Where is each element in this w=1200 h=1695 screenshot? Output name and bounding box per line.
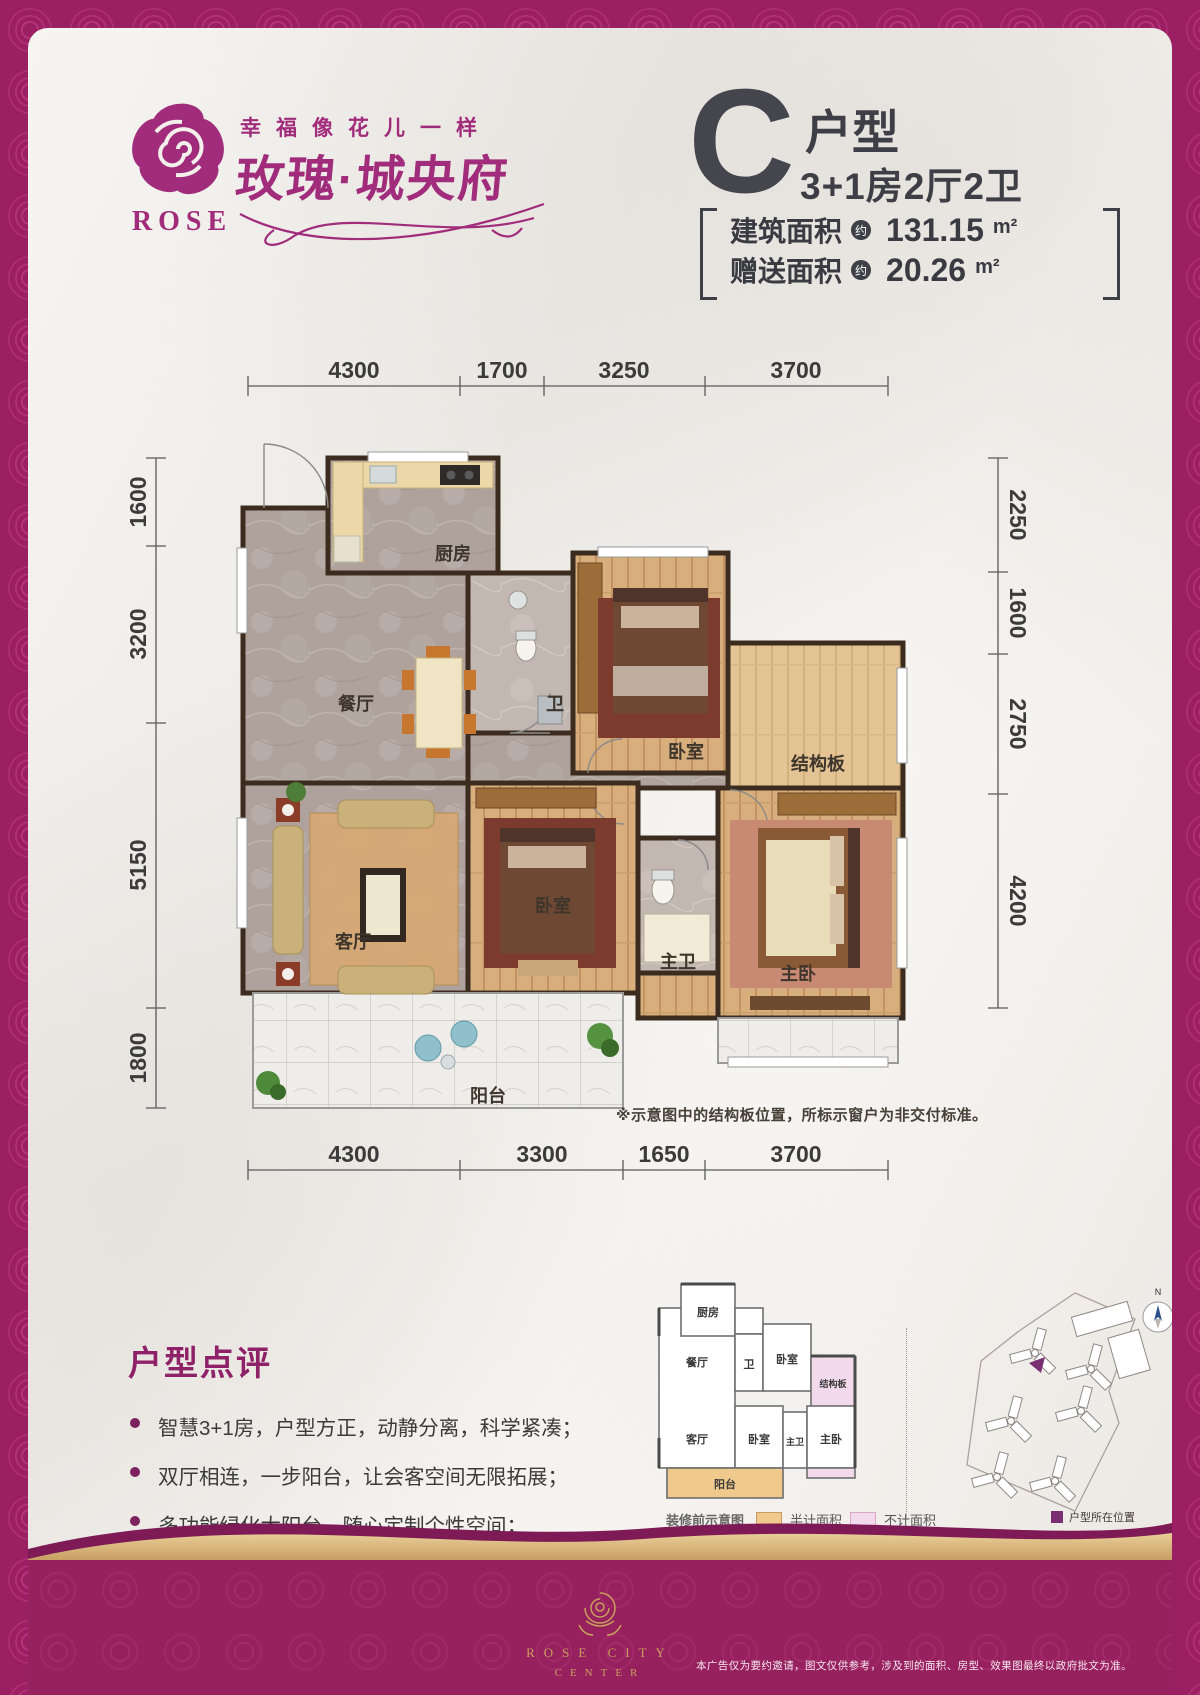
dim-left-1: 1600 xyxy=(125,476,151,527)
mini-hall xyxy=(735,1308,763,1334)
plan-note: ※示意图中的结构板位置，所标示窗户为非交付标准。 xyxy=(616,1104,988,1125)
room-dining-label: 餐厅 xyxy=(337,693,374,714)
dim-left-4: 1800 xyxy=(125,1032,151,1083)
review-title: 户型点评 xyxy=(128,1336,608,1385)
built-area-value: 131.15 xyxy=(886,212,984,249)
gift-area-unit: m² xyxy=(975,256,999,279)
dim-top-4: 3700 xyxy=(770,357,821,383)
dim-bottom-2: 3300 xyxy=(516,1141,567,1167)
mini-dining-label: 餐厅 xyxy=(685,1355,708,1369)
mini-kitchen-label: 厨房 xyxy=(697,1305,719,1319)
footer-logo-line1: ROSE CITY xyxy=(526,1645,674,1661)
room-kitchen-label: 厨房 xyxy=(435,543,471,564)
mini-master-bedroom-label: 主卧 xyxy=(820,1432,842,1446)
unit-letter: C xyxy=(688,68,795,216)
room-south-strip xyxy=(718,1018,898,1063)
footer-logo-line2: CENTER xyxy=(555,1667,646,1679)
approx-badge: 约 xyxy=(851,260,871,280)
footer-band: ROSE CITY CENTER 本广告仅为要约邀请，图文仅供参考，涉及到的面积… xyxy=(28,1560,1172,1695)
unit-type-label: 户型 xyxy=(805,94,899,163)
mini-slab-label: 结构板 xyxy=(819,1378,847,1389)
gift-area-row: 赠送面积 约 20.26 m² xyxy=(730,252,1000,288)
gift-area-value: 20.26 xyxy=(886,252,966,289)
room-bedroom-top-label: 卧室 xyxy=(668,741,704,762)
footer-wave xyxy=(28,1487,1172,1565)
area-box: 建筑面积 约 131.15 m² 赠送面积 约 20.26 m² xyxy=(700,208,1120,300)
gift-area-label: 赠送面积 xyxy=(730,250,842,290)
site-tower xyxy=(1010,1328,1056,1374)
mini-pink-strip xyxy=(807,1468,855,1478)
mini-bedroom-top-label: 卧室 xyxy=(776,1352,798,1366)
bedroom-top-furniture xyxy=(578,563,720,738)
dim-right-1: 2250 xyxy=(1005,489,1031,540)
room-living-label: 客厅 xyxy=(335,931,371,952)
dim-left-3: 5150 xyxy=(125,839,151,890)
mini-master-bath-label: 主卫 xyxy=(786,1436,804,1447)
room-balcony-label: 阳台 xyxy=(470,1085,506,1106)
room-bath-label: 卫 xyxy=(546,694,564,714)
room-master-bedroom-label: 主卧 xyxy=(780,963,816,984)
dim-top-1: 4300 xyxy=(328,357,379,383)
room-master-bath-label: 主卫 xyxy=(660,951,696,972)
mini-bath-label: 卫 xyxy=(744,1358,755,1371)
site-tower xyxy=(986,1396,1032,1442)
dim-right-4: 4200 xyxy=(1005,875,1031,926)
bracket-right xyxy=(1103,208,1120,300)
dim-right-3: 2750 xyxy=(1005,698,1031,749)
review-bullet: 双厅相连，一步阳台，让会客空间无限拓展； xyxy=(128,1460,608,1490)
review-bullet: 智慧3+1房，户型方正，动静分离，科学紧凑； xyxy=(128,1411,608,1441)
footer-rose-icon xyxy=(560,1583,640,1643)
dim-rail-left xyxy=(146,458,166,1108)
unit-layout: 3+1房2厅2卫 xyxy=(800,156,1023,210)
room-corridor xyxy=(638,973,718,1018)
poster-page: ROSE 幸福像花儿一样 玫瑰·城央府 C 户型 3+1房2厅2卫 建筑面积 约… xyxy=(0,0,1200,1695)
compass-n-label: N xyxy=(1155,1287,1162,1297)
dim-bottom-4: 3700 xyxy=(770,1141,821,1167)
dim-top-2: 1700 xyxy=(476,357,527,383)
rose-logo-text: ROSE xyxy=(112,206,252,238)
bracket-left xyxy=(700,208,717,300)
built-area-row: 建筑面积 约 131.15 m² xyxy=(730,212,1017,248)
floor-plan: 4300 1700 3250 3700 4300 3300 1650 3700 … xyxy=(118,348,1068,1198)
built-area-unit: m² xyxy=(993,216,1017,239)
built-area-label: 建筑面积 xyxy=(730,210,842,250)
site-tower xyxy=(1056,1386,1102,1432)
dim-bottom-1: 4300 xyxy=(328,1141,379,1167)
dim-top-3: 3250 xyxy=(598,357,649,383)
rose-logo-icon xyxy=(118,92,238,210)
mini-bedroom-bottom-label: 卧室 xyxy=(748,1432,770,1446)
room-bedroom-bottom-label: 卧室 xyxy=(535,895,571,916)
dim-bottom-3: 1650 xyxy=(638,1141,689,1167)
dim-rail-right xyxy=(988,458,1008,1008)
dim-left-2: 3200 xyxy=(125,608,151,659)
brand-tagline: 幸福像花儿一样 xyxy=(240,112,492,142)
room-slab-label: 结构板 xyxy=(791,753,846,774)
dim-right-2: 1600 xyxy=(1005,587,1031,638)
footer-disclaimer: 本广告仅为要约邀请，图文仅供参考，涉及到的面积、房型、效果图最终以政府批文为准。 xyxy=(696,1658,1132,1673)
mini-living-label: 客厅 xyxy=(685,1432,708,1446)
flourish-swash-icon xyxy=(234,196,554,252)
compass-icon: N xyxy=(1143,1287,1172,1332)
mini-floor-plan: 厨房 餐厅 卫 卧室 结构板 客厅 卧室 主卫 主卧 阳台 xyxy=(593,1216,873,1506)
content-sheet: ROSE 幸福像花儿一样 玫瑰·城央府 C 户型 3+1房2厅2卫 建筑面积 约… xyxy=(28,28,1172,1695)
site-tower xyxy=(1066,1344,1112,1390)
approx-badge: 约 xyxy=(851,220,871,240)
